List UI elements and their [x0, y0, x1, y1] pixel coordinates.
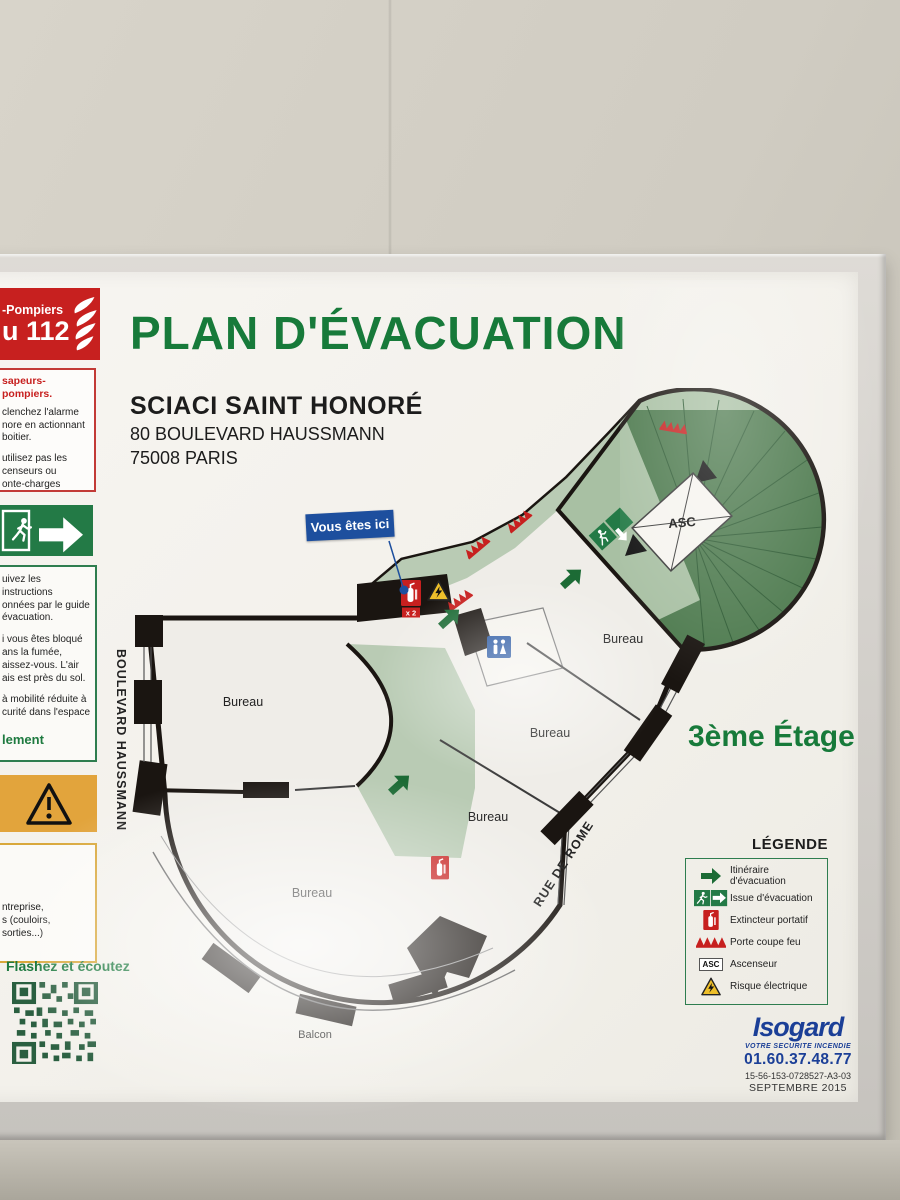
legend-title: LÉGENDE — [685, 836, 828, 853]
wall-below-frame — [0, 1140, 900, 1200]
legend-item: ASC Ascenseur — [692, 953, 823, 975]
fire-extinguisher-icon — [431, 856, 449, 879]
alarm-header: sapeurs-pompiers. — [2, 375, 91, 402]
notice-body: ntreprise, s (couloirs, sorties...) — [2, 901, 92, 940]
warning-triangle-icon — [26, 783, 72, 825]
legend-item: Risque électrique — [692, 975, 823, 997]
room-label: Bureau — [468, 810, 508, 824]
flame-icon — [70, 297, 100, 351]
emergency-line1: -Pompiers — [2, 303, 70, 317]
notice-box: ntreprise, s (couloirs, sorties...) — [0, 843, 97, 963]
legend-item: Porte coupe feu — [692, 931, 823, 953]
alarm-body2: utilisez pas les censeurs ou onte-charge… — [2, 453, 91, 491]
instructions-para2: i vous êtes bloqué ans la fumée, aissez-… — [2, 634, 92, 685]
elevator-icon: ASC — [692, 958, 730, 971]
room-label: Bureau — [530, 726, 570, 740]
assembly-point-label: lement — [2, 732, 92, 749]
alarm-instructions-box: sapeurs-pompiers. clenchez l'alarme nore… — [0, 368, 96, 492]
vendor-logo: Isogard — [735, 1014, 861, 1041]
instructions-para1: uivez les instructions onnées par le gui… — [2, 574, 92, 625]
emergency-number-box: -Pompiers u 112 — [0, 288, 100, 360]
exit-sign-icon — [692, 890, 730, 907]
legend-item: Extincteur portatif — [692, 909, 823, 931]
street-label-boulevard: BOULEVARD HAUSSMANN — [114, 649, 128, 831]
balcony-label: Balcon — [298, 1029, 332, 1041]
evacuation-route-arrow-icon — [692, 867, 730, 885]
legend-item: Itinéraire d'évacuation — [692, 865, 823, 887]
instructions-para3: à mobilité réduite à curité dans l'espac… — [2, 694, 92, 720]
vendor-block: Isogard VOTRE SECURITE INCENDIE 01.60.37… — [735, 1014, 861, 1094]
page-title: PLAN D'ÉVACUATION — [130, 306, 626, 360]
warning-box — [0, 775, 97, 832]
plan-date: SEPTEMBRE 2015 — [735, 1082, 861, 1094]
fire-extinguisher-icon — [692, 910, 730, 930]
legend-box: Itinéraire d'évacuation Issue d'évacuati… — [685, 858, 828, 1005]
room-label: Bureau — [292, 886, 332, 900]
you-are-here-dot — [400, 586, 409, 595]
wall-block — [243, 782, 289, 798]
evacuation-instructions-box: uivez les instructions onnées par le gui… — [0, 565, 97, 762]
legend-item: Issue d'évacuation — [692, 887, 823, 909]
exit-running-man-icon — [1, 508, 89, 553]
partition-wall — [150, 790, 243, 792]
floor-label: 3ème Étage — [688, 720, 855, 754]
emergency-line2: u 112 — [2, 317, 70, 345]
wall-corner-seam — [388, 0, 392, 272]
you-are-here-label: Vous êtes ici — [305, 510, 394, 542]
qr-code — [12, 982, 98, 1064]
room-label: Bureau — [603, 632, 643, 646]
extinguisher-count: x 2 — [406, 609, 416, 618]
electrical-hazard-icon — [692, 977, 730, 996]
fire-door-icon — [692, 937, 730, 948]
exit-sign-pictogram — [0, 505, 93, 556]
alarm-body1: clenchez l'alarme nore en actionnant boi… — [2, 407, 91, 445]
room-label: Bureau — [223, 695, 263, 709]
plan-reference: 15-56-153-0728527-A3-03 — [735, 1071, 861, 1081]
vendor-tagline: VOTRE SECURITE INCENDIE — [735, 1043, 861, 1050]
wc-icon — [487, 636, 511, 658]
vendor-phone: 01.60.37.48.77 — [735, 1051, 861, 1069]
elevator-label: ASC — [668, 514, 697, 531]
